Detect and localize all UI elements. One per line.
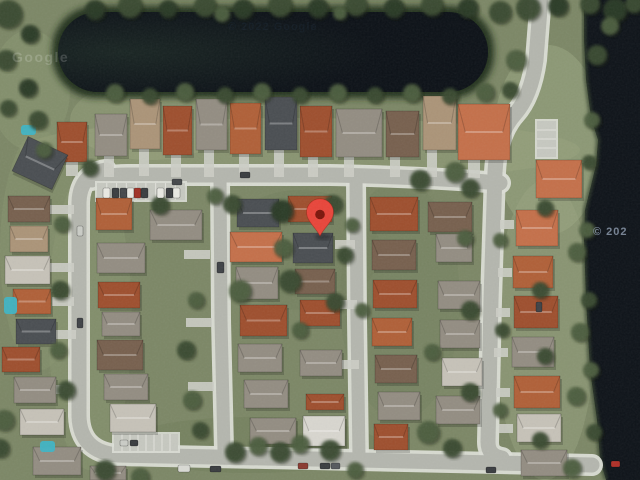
map-viewport: Google © 2022 Google © 202 (0, 0, 640, 480)
photo-grain-overlay (0, 0, 640, 480)
satellite-map[interactable]: Google © 2022 Google © 202 (0, 0, 640, 480)
